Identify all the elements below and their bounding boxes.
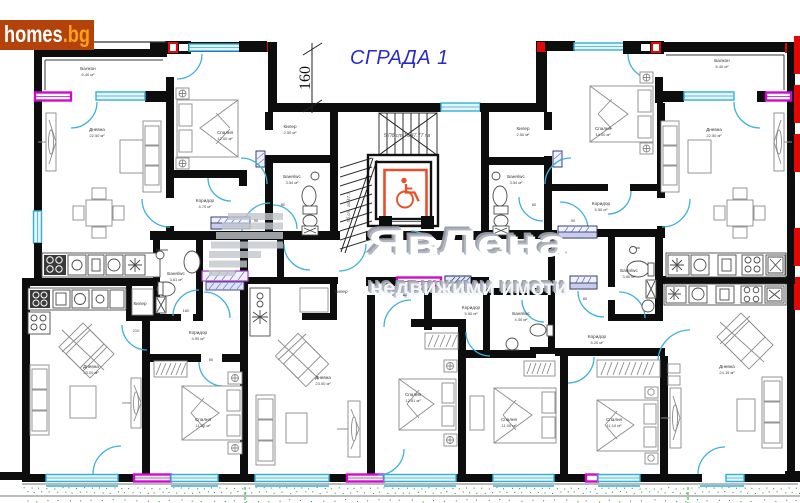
svg-text:Балкон: Балкон <box>80 66 96 71</box>
svg-text:4.30 м²: 4.30 м² <box>515 317 529 322</box>
svg-text:недвижими имоти: недвижими имоти <box>370 277 568 300</box>
svg-text:90: 90 <box>571 218 576 223</box>
svg-text:Коридор: Коридор <box>189 330 208 335</box>
svg-text:Баня/wc: Баня/wc <box>512 311 530 316</box>
svg-text:14.00 м²: 14.00 м² <box>595 132 611 137</box>
svg-text:4.70 м²: 4.70 м² <box>199 204 213 209</box>
svg-text:2.50 м²: 2.50 м² <box>517 132 531 137</box>
svg-text:24.15 м²: 24.15 м² <box>719 370 735 375</box>
svg-text:6.40 м²: 6.40 м² <box>716 64 730 69</box>
svg-text:4.90 м²: 4.90 м² <box>192 336 206 341</box>
svg-text:Баня/wc: Баня/wc <box>283 174 301 179</box>
svg-text:5.50 м²: 5.50 м² <box>595 207 609 212</box>
svg-text:22.50 м²: 22.50 м² <box>89 133 105 138</box>
svg-text:3.60 м²: 3.60 м² <box>623 274 637 279</box>
svg-text:СГРАДА 1: СГРАДА 1 <box>350 47 449 69</box>
svg-text:Спалня: Спалня <box>606 417 623 422</box>
svg-text:Дневна: Дневна <box>706 127 722 132</box>
svg-text:Коридор: Коридор <box>462 305 481 310</box>
svg-text:3.54 м²: 3.54 м² <box>286 180 300 185</box>
svg-text:Дневна: Дневна <box>719 364 735 369</box>
svg-text:Спалня: Спалня <box>217 130 234 135</box>
svg-text:3.61 м²: 3.61 м² <box>170 277 184 282</box>
svg-text:5.20 м²: 5.20 м² <box>591 340 605 345</box>
svg-text:Килер: Килер <box>283 124 296 129</box>
svg-text:Баня/wc: Баня/wc <box>507 174 525 179</box>
svg-text:9б.ст. 16/47.7: 9б.ст. 16/47.7 <box>346 192 351 222</box>
svg-text:23.00 м²: 23.00 м² <box>83 370 99 375</box>
svg-text:11.20 м²: 11.20 м² <box>196 423 212 428</box>
svg-text:Спалня: Спалня <box>501 417 518 422</box>
svg-text:22.50 м²: 22.50 м² <box>706 133 722 138</box>
svg-text:80: 80 <box>583 296 588 301</box>
svg-text:3.54 м²: 3.54 м² <box>510 180 524 185</box>
svg-text:80: 80 <box>209 357 214 362</box>
svg-text:Баня/wc: Баня/wc <box>620 268 638 273</box>
svg-text:23.00 м²: 23.00 м² <box>315 381 331 386</box>
svg-text:Дневна: Дневна <box>83 364 99 369</box>
svg-text:Коридор: Коридор <box>592 201 611 206</box>
svg-text:5 Пб.ст 16/47.77 пв: 5 Пб.ст 16/47.77 пв <box>384 133 431 139</box>
svg-text:Дневна: Дневна <box>89 127 105 132</box>
svg-text:Спалня: Спалня <box>405 392 422 397</box>
svg-text:11.00 м²: 11.00 м² <box>502 423 518 428</box>
svg-text:Спалня: Спалня <box>595 126 612 131</box>
svg-text:2.50 м²: 2.50 м² <box>284 130 298 135</box>
svg-text:Килер: Килер <box>334 289 347 294</box>
svg-text:Балкон: Балкон <box>714 58 730 63</box>
svg-text:80: 80 <box>403 292 408 297</box>
svg-text:homes.bg: homes.bg <box>4 21 90 47</box>
svg-text:12.00 м²: 12.00 м² <box>217 136 233 141</box>
svg-text:6.40 м²: 6.40 м² <box>82 72 96 77</box>
svg-text:180: 180 <box>183 308 190 313</box>
svg-text:Спалня: Спалня <box>195 417 212 422</box>
svg-text:Коридор: Коридор <box>196 198 215 203</box>
svg-text:ЯвЛена: ЯвЛена <box>369 224 570 266</box>
svg-text:5.90 м²: 5.90 м² <box>465 311 479 316</box>
svg-text:80: 80 <box>532 202 537 207</box>
svg-text:90: 90 <box>254 218 259 223</box>
svg-text:Килер: Килер <box>133 301 146 306</box>
svg-text:80: 80 <box>281 202 286 207</box>
svg-text:11.10 м²: 11.10 м² <box>607 423 623 428</box>
svg-text:12.81 м²: 12.81 м² <box>405 398 421 403</box>
svg-text:210: 210 <box>133 328 140 333</box>
svg-text:160: 160 <box>297 66 314 90</box>
svg-text:Коридор: Коридор <box>588 334 607 339</box>
svg-text:Дневна: Дневна <box>315 375 331 380</box>
svg-text:Килер: Килер <box>516 126 529 131</box>
svg-text:Баня/wc: Баня/wc <box>167 271 185 276</box>
